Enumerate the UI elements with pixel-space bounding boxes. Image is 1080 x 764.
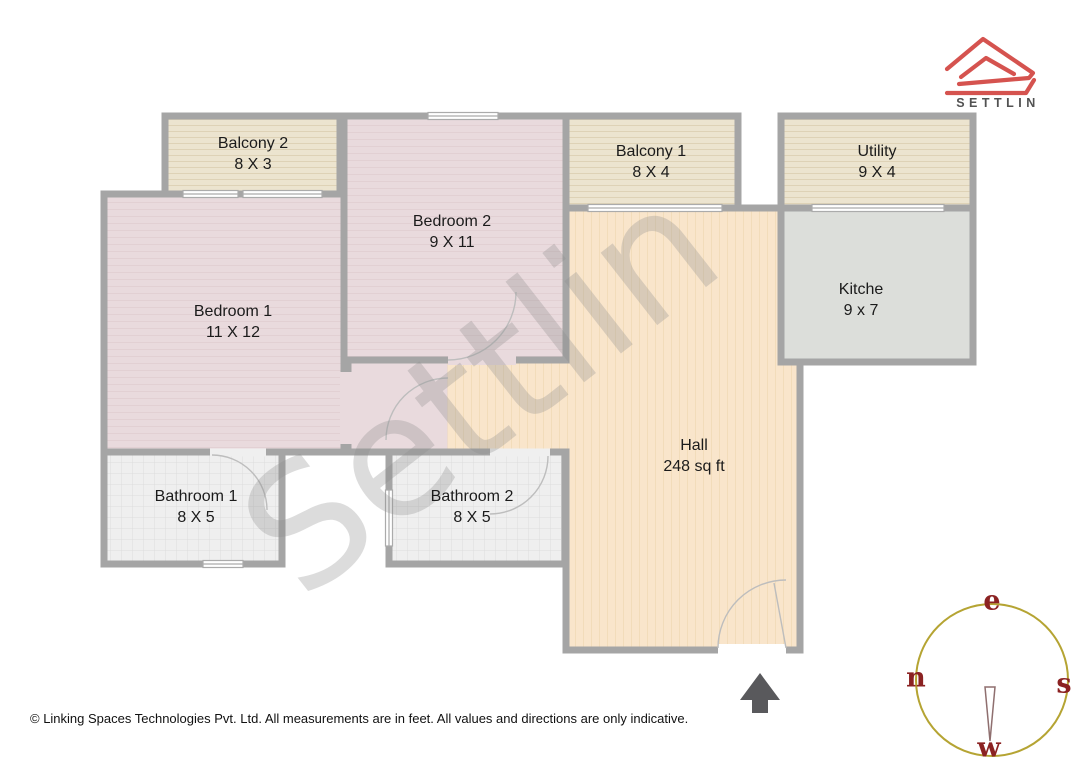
room-dims: 9 X 11	[413, 233, 491, 254]
room-name: Bedroom 2	[413, 212, 491, 233]
brand-wordmark: SETTLIN	[937, 96, 1059, 110]
room-label-bathroom-2: Bathroom 2 8 X 5	[431, 487, 514, 529]
room-dims: 8 X 4	[616, 163, 686, 184]
floorplan-drawing	[0, 0, 1080, 764]
room-name: Kitche	[839, 280, 883, 301]
room-name: Utility	[857, 142, 896, 163]
bathroom2-door-opening	[490, 449, 550, 457]
room-dims: 11 X 12	[194, 323, 272, 344]
bedroom2-door-opening	[448, 356, 516, 365]
entrance-arrow-icon	[740, 673, 780, 713]
floorplan-page: Settlin Balcony 2 8 X 3 Bedroom 2 9 X 11…	[0, 0, 1080, 764]
settlin-logo-icon	[947, 39, 1034, 93]
room-dims: 9 x 7	[839, 301, 883, 322]
room-name: Hall	[663, 436, 724, 457]
room-dims: 8 X 5	[431, 508, 514, 529]
entrance-door-opening	[718, 644, 786, 654]
room-name: Balcony 2	[218, 134, 288, 155]
room-label-bedroom-2: Bedroom 2 9 X 11	[413, 212, 491, 254]
compass-letter-north: n	[906, 663, 926, 694]
room-label-kitchen: Kitche 9 x 7	[839, 280, 883, 322]
room-dims: 8 X 3	[218, 155, 288, 176]
room-name: Bathroom 1	[155, 487, 238, 508]
room-label-utility: Utility 9 X 4	[857, 142, 896, 184]
room-dims: 9 X 4	[857, 163, 896, 184]
room-name: Bedroom 1	[194, 302, 272, 323]
room-dims: 248 sq ft	[663, 457, 724, 478]
compass-letter-south: s	[1056, 669, 1071, 700]
room-label-balcony-1: Balcony 1 8 X 4	[616, 142, 686, 184]
compass-letter-west: w	[977, 733, 1000, 764]
compass-letter-east: e	[983, 586, 1000, 617]
footer-disclaimer: © Linking Spaces Technologies Pvt. Ltd. …	[30, 711, 688, 726]
room-label-balcony-2: Balcony 2 8 X 3	[218, 134, 288, 176]
room-name: Bathroom 2	[431, 487, 514, 508]
room-dims: 8 X 5	[155, 508, 238, 529]
room-name: Balcony 1	[616, 142, 686, 163]
vestibule-floor	[352, 364, 448, 449]
room-label-bedroom-1: Bedroom 1 11 X 12	[194, 302, 272, 344]
bedroom1-door-opening	[340, 372, 352, 444]
room-label-hall: Hall 248 sq ft	[663, 436, 724, 478]
room-label-bathroom-1: Bathroom 1 8 X 5	[155, 487, 238, 529]
